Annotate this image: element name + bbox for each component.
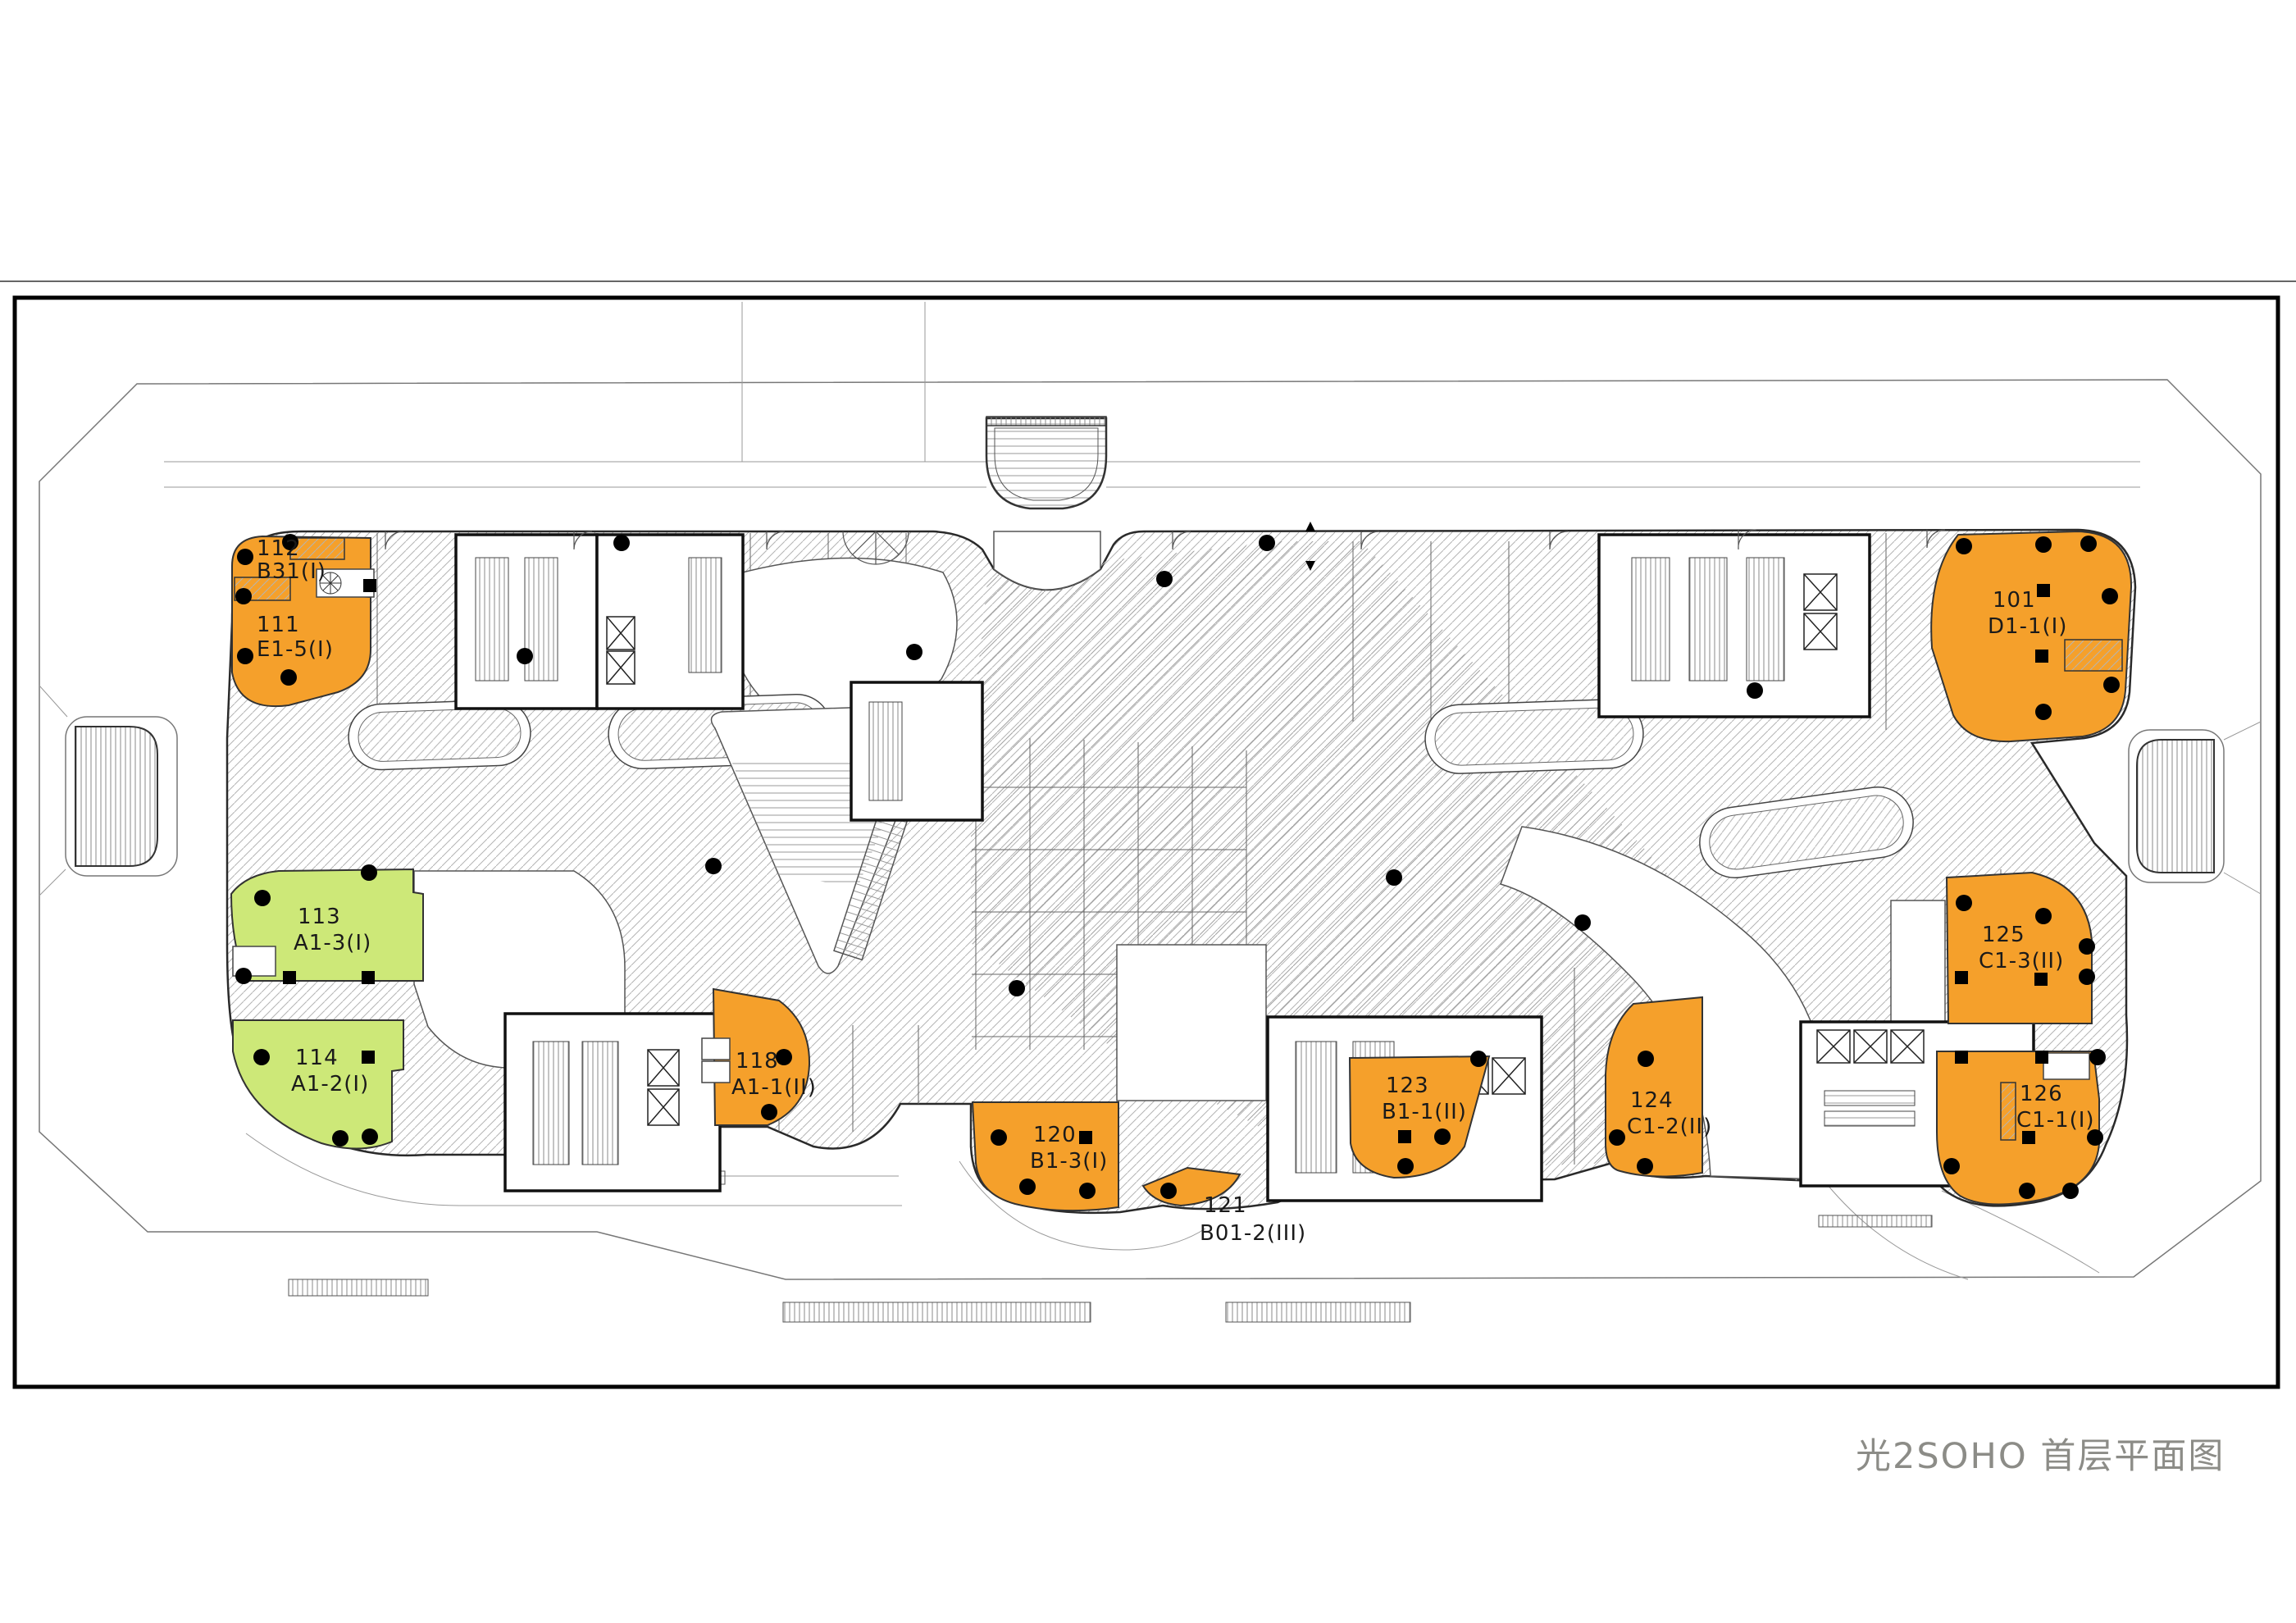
unit-111-code: E1-5(I) [257,637,334,662]
unit-121-number: 121 [1204,1193,1247,1218]
unit-124-code: C1-2(II) [1627,1115,1712,1139]
unit-101-code: D1-1(I) [1988,614,2067,639]
unit-113-number: 113 [298,905,341,929]
unit-118-code: A1-1(II) [731,1075,817,1100]
unit-125-code: C1-3(II) [1979,949,2064,973]
hatched-fixture [2001,1083,2016,1140]
unit-125-area[interactable] [1947,873,2092,1023]
unit-124-number: 124 [1630,1088,1674,1113]
unit-124-area[interactable] [1606,997,1702,1177]
unit-101-number: 101 [1993,588,2036,613]
unit-121-code: B01-2(III) [1200,1221,1306,1246]
unit-125-number: 125 [1982,923,2025,947]
lift-shaft [702,1038,730,1060]
unit-114-number: 114 [295,1046,339,1070]
unit-120-code: B1-3(I) [1030,1149,1108,1174]
elevator-icon [1817,1030,1924,1063]
unit-126-number: 126 [2020,1082,2063,1106]
floor-plan-canvas: 112 B31(I) 111 E1-5(I) 101 D1-1(I) 113 A… [0,0,2296,1623]
hatched-fixture [2065,640,2122,671]
unit-123-number: 123 [1386,1074,1429,1098]
unit-114-code: A1-2(I) [291,1072,369,1096]
unit-113-code: A1-3(I) [294,931,371,955]
floor-plan-page: 112 B31(I) 111 E1-5(I) 101 D1-1(I) 113 A… [0,0,2296,1623]
unit-112-number: 112 [257,536,300,561]
lift-shaft [702,1061,730,1083]
unit-112-code: B31(I) [257,559,326,584]
unit-111-number: 111 [257,613,300,637]
unit-118-number: 118 [736,1049,779,1074]
entrance-lobby-box [2043,1053,2089,1079]
drawing-title: 光2SOHO 首层平面图 [1856,1436,2225,1477]
unit-123-code: B1-1(II) [1382,1100,1467,1124]
unit-126-code: C1-1(I) [2016,1108,2095,1133]
unit-120-number: 120 [1033,1123,1077,1147]
